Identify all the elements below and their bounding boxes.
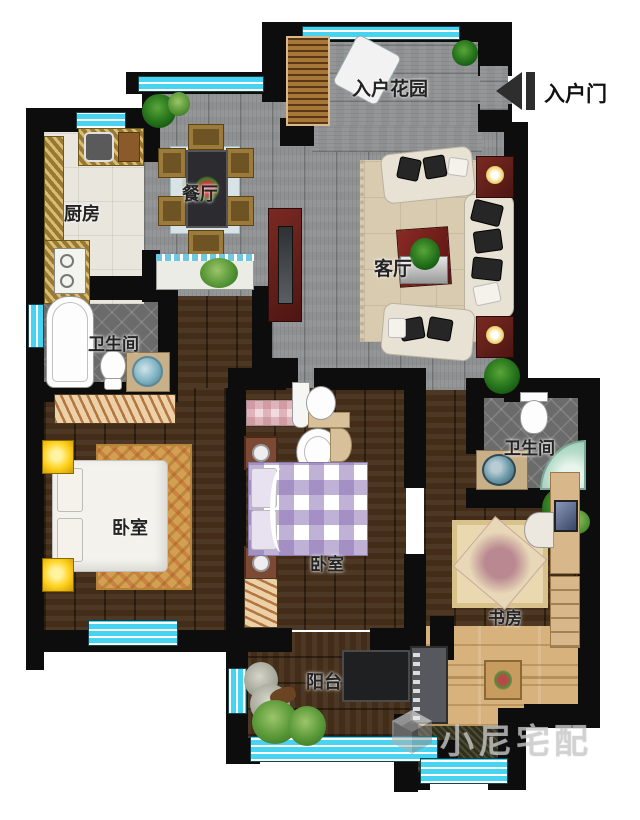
wall xyxy=(466,378,484,454)
plant-icon xyxy=(484,358,520,394)
study-label: 书房 xyxy=(488,604,522,629)
entry-door-arrow-icon xyxy=(496,72,522,110)
balcony-mat xyxy=(342,650,410,702)
vanity-wedge xyxy=(330,428,352,462)
entry-door-arrow-bar xyxy=(526,72,535,110)
lamp-icon xyxy=(486,166,504,184)
bookshelf-icon xyxy=(550,576,580,648)
window xyxy=(76,112,126,129)
bathroom-left-label: 卫生间 xyxy=(88,330,139,355)
window xyxy=(88,620,178,646)
wall xyxy=(404,388,426,488)
desk-chair-icon xyxy=(524,512,554,548)
wall xyxy=(226,388,246,654)
bedroom-master-label: 卧室 xyxy=(112,514,148,540)
plant-icon xyxy=(168,92,190,116)
chair-icon xyxy=(188,124,224,150)
window xyxy=(28,304,44,348)
nightstand-dish xyxy=(252,444,270,462)
kitchen-label: 厨房 xyxy=(64,200,100,226)
cutting-board-icon xyxy=(118,132,140,162)
chair-icon xyxy=(226,196,254,226)
tea-table-flowers xyxy=(494,670,512,690)
floorplan: 入户花园 入户门 厨房 餐厅 客厅 xyxy=(0,0,640,820)
pillow xyxy=(57,518,83,562)
lamp-icon xyxy=(486,326,504,344)
stove-burner xyxy=(60,254,74,268)
watermark-text: 小尼宅配 xyxy=(440,714,592,763)
sofa-pillow xyxy=(426,316,453,342)
window xyxy=(138,76,264,92)
sofa-pillow xyxy=(473,228,504,254)
chair-icon xyxy=(226,148,254,178)
plant-icon xyxy=(410,238,440,270)
entry-garden-label: 入户花园 xyxy=(352,74,428,101)
plant-icon xyxy=(200,258,238,288)
living-label: 客厅 xyxy=(374,254,412,281)
chair-icon xyxy=(188,230,224,256)
balcony-label: 阳台 xyxy=(306,668,342,694)
wardrobe-icon xyxy=(244,578,278,628)
blanket-fold xyxy=(270,468,292,552)
sideboard-trim xyxy=(156,254,254,261)
monitor-icon xyxy=(554,500,578,532)
wall xyxy=(228,368,286,390)
chair-icon xyxy=(158,148,186,178)
nightstand-dish xyxy=(252,554,270,572)
kitchen-sink-icon xyxy=(84,132,114,162)
toilet-base xyxy=(104,378,122,390)
sink-icon xyxy=(132,356,163,387)
bedroom-second-label: 卧室 xyxy=(310,550,344,575)
bathroom-right-label: 卫生间 xyxy=(504,434,555,459)
sofa-pillow xyxy=(388,318,406,338)
nightstand-icon xyxy=(42,440,74,474)
wardrobe-icon xyxy=(54,394,176,424)
stove-burner xyxy=(60,274,74,288)
wall xyxy=(578,378,600,726)
sofa-pillow xyxy=(396,156,422,182)
sofa-pillow xyxy=(471,256,503,281)
plant-icon xyxy=(288,706,326,746)
pillow xyxy=(57,468,83,512)
toilet-bowl xyxy=(306,386,336,420)
bathtub-inner xyxy=(52,302,88,382)
sofa-pillow xyxy=(422,154,447,179)
nightstand-icon xyxy=(42,558,74,592)
entry-door-label: 入户门 xyxy=(544,78,607,108)
tv-icon xyxy=(278,226,293,304)
sofa-pillow xyxy=(447,157,469,178)
wall xyxy=(232,628,292,652)
shoe-cabinet-icon xyxy=(286,36,330,126)
dining-label: 餐厅 xyxy=(182,180,218,206)
watermark-logo-icon xyxy=(386,706,438,758)
plant-icon xyxy=(452,40,478,66)
wall xyxy=(314,368,426,390)
toilet-icon xyxy=(520,400,548,434)
